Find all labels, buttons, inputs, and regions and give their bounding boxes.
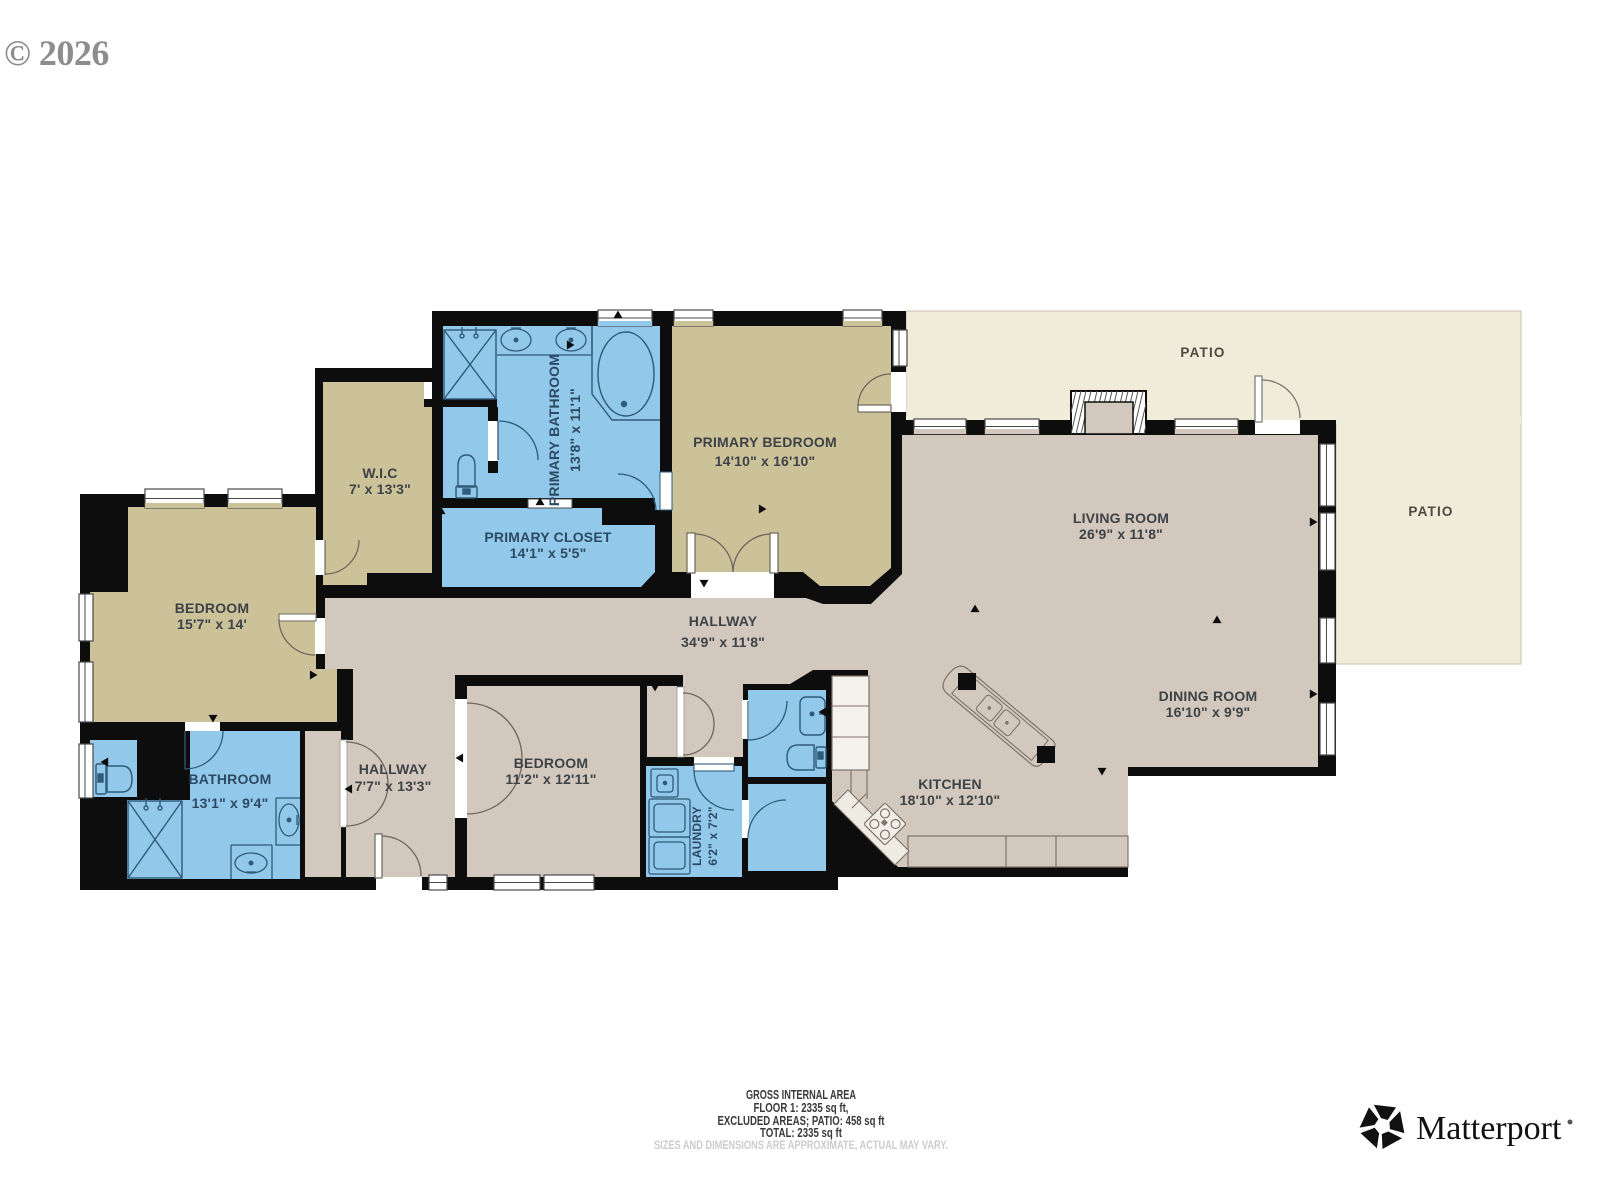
svg-text:15'7" x 14': 15'7" x 14' [177,616,247,632]
svg-text:FLOOR 1: 2335 sq ft,: FLOOR 1: 2335 sq ft, [754,1101,849,1115]
svg-text:© 2026: © 2026 [4,33,109,73]
svg-text:BATHROOM: BATHROOM [189,771,272,787]
svg-text:BEDROOM: BEDROOM [514,755,589,771]
svg-text:PATIO: PATIO [1408,504,1453,519]
svg-text:PATIO: PATIO [1180,345,1225,360]
svg-text:18'10" x 12'10": 18'10" x 12'10" [900,792,1001,808]
svg-text:BEDROOM: BEDROOM [175,600,250,616]
svg-text:PRIMARY BATHROOM: PRIMARY BATHROOM [546,354,562,506]
svg-text:HALLWAY: HALLWAY [689,613,758,629]
svg-text:DINING ROOM: DINING ROOM [1159,688,1258,704]
svg-text:Matterport: Matterport [1416,1110,1562,1147]
svg-text:W.I.C: W.I.C [362,465,397,481]
svg-text:14'10" x 16'10": 14'10" x 16'10" [715,453,816,469]
svg-text:7' x 13'3": 7' x 13'3" [349,481,411,497]
svg-text:LAUNDRY: LAUNDRY [690,806,704,866]
svg-text:GROSS INTERNAL AREA: GROSS INTERNAL AREA [746,1088,856,1102]
svg-text:14'1" x 5'5": 14'1" x 5'5" [510,545,587,561]
svg-text:LIVING ROOM: LIVING ROOM [1073,510,1169,526]
svg-text:11'2" x 12'11": 11'2" x 12'11" [505,771,596,787]
svg-text:7'7" x 13'3": 7'7" x 13'3" [355,778,432,794]
svg-text:26'9" x 11'8": 26'9" x 11'8" [1079,526,1163,542]
svg-text:HALLWAY: HALLWAY [359,761,428,777]
svg-text:34'9" x 11'8": 34'9" x 11'8" [681,634,765,650]
svg-text:13'8" x 11'1": 13'8" x 11'1" [567,388,583,472]
svg-text:KITCHEN: KITCHEN [918,776,982,792]
svg-text:PRIMARY CLOSET: PRIMARY CLOSET [484,529,612,545]
svg-text:SIZES AND DIMENSIONS ARE APPRO: SIZES AND DIMENSIONS ARE APPROXIMATE, AC… [654,1138,948,1152]
svg-text:6'2" x 7'2": 6'2" x 7'2" [706,806,720,865]
svg-text:16'10" x 9'9": 16'10" x 9'9" [1166,704,1251,720]
svg-text:PRIMARY BEDROOM: PRIMARY BEDROOM [693,434,837,450]
svg-text:13'1" x 9'4": 13'1" x 9'4" [192,795,269,811]
